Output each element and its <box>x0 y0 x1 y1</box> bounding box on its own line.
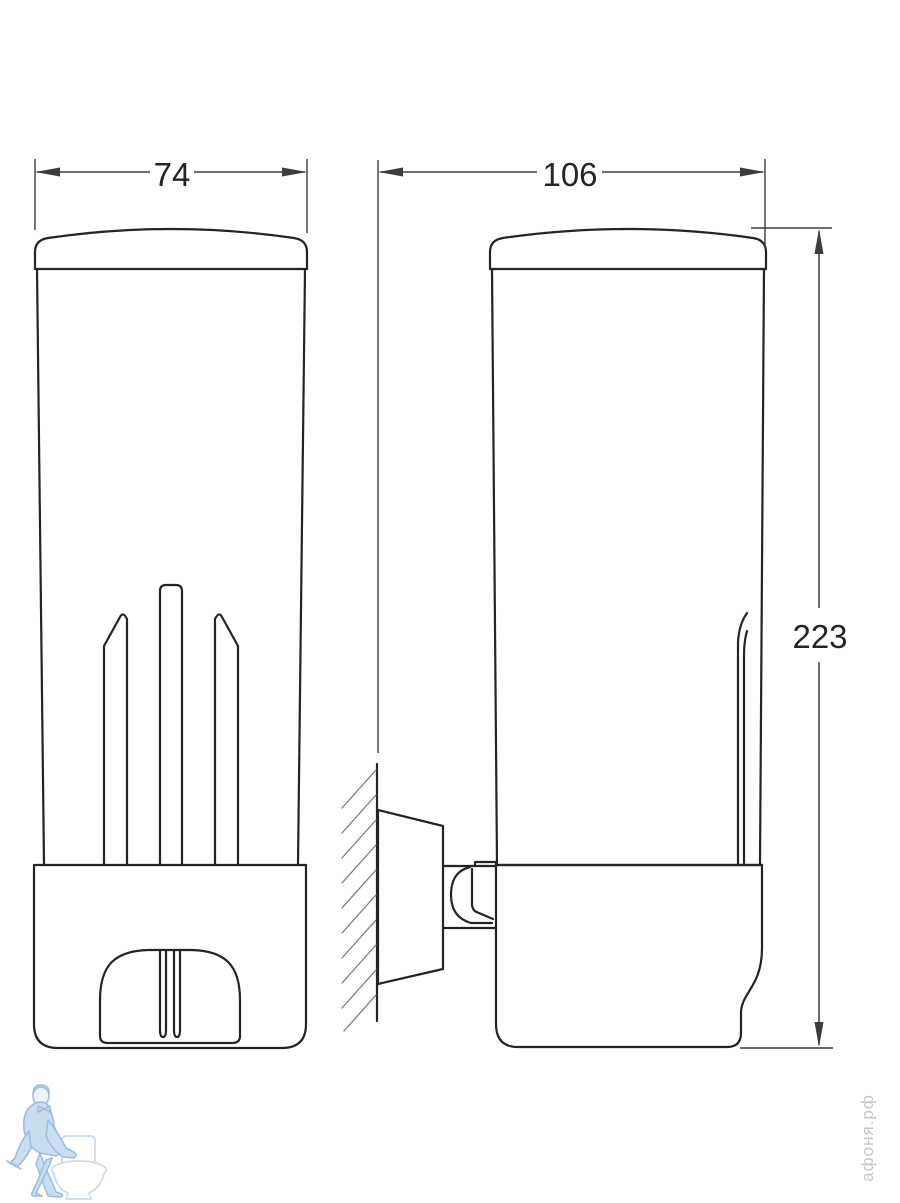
dimension-side-depth: 106 <box>378 156 765 248</box>
front-slot-center <box>160 585 182 864</box>
side-cap-outline <box>490 229 766 269</box>
side-view <box>490 229 766 1047</box>
dim106-arrowhead-left <box>378 168 403 177</box>
mount-bracket <box>378 810 497 984</box>
dimension-depth-label: 106 <box>542 156 597 193</box>
plumber-arm-wrench <box>10 1131 31 1167</box>
technical-drawing-canvas: 74 106 223 <box>0 0 900 1200</box>
dim223-arrowhead-bottom <box>815 1022 824 1047</box>
front-body-right-edge <box>298 269 305 864</box>
side-slot-line-inner <box>744 631 747 864</box>
dispenser-drawing: 74 106 223 <box>0 0 900 1200</box>
wall-hatching <box>342 770 376 1031</box>
site-watermark-text: афоня.рф <box>858 1073 878 1203</box>
front-base-outline <box>34 865 306 1048</box>
front-slot-left <box>104 614 127 864</box>
side-base-outline <box>496 865 762 1047</box>
front-slot-right <box>215 614 238 864</box>
front-body-left-edge <box>37 269 44 864</box>
dim223-arrowhead-top <box>815 229 824 254</box>
dimension-height-label: 223 <box>792 618 847 655</box>
dimension-width-label: 74 <box>154 156 191 193</box>
dim74-arrowhead-left <box>35 168 60 177</box>
dim74-arrowhead-right <box>282 168 307 177</box>
side-body-left-edge <box>492 269 497 864</box>
wall-section <box>342 160 378 1031</box>
front-view <box>34 229 307 1048</box>
plumber-logo-watermark <box>7 1085 106 1199</box>
bracket-hook-inner <box>472 869 493 919</box>
bracket-plate <box>378 810 443 984</box>
dimension-front-width: 74 <box>35 156 307 233</box>
side-body-right-edge <box>760 269 764 864</box>
front-cap-outline <box>35 229 307 269</box>
side-slot-line-outer <box>738 613 747 864</box>
dim106-arrowhead-right <box>740 168 765 177</box>
